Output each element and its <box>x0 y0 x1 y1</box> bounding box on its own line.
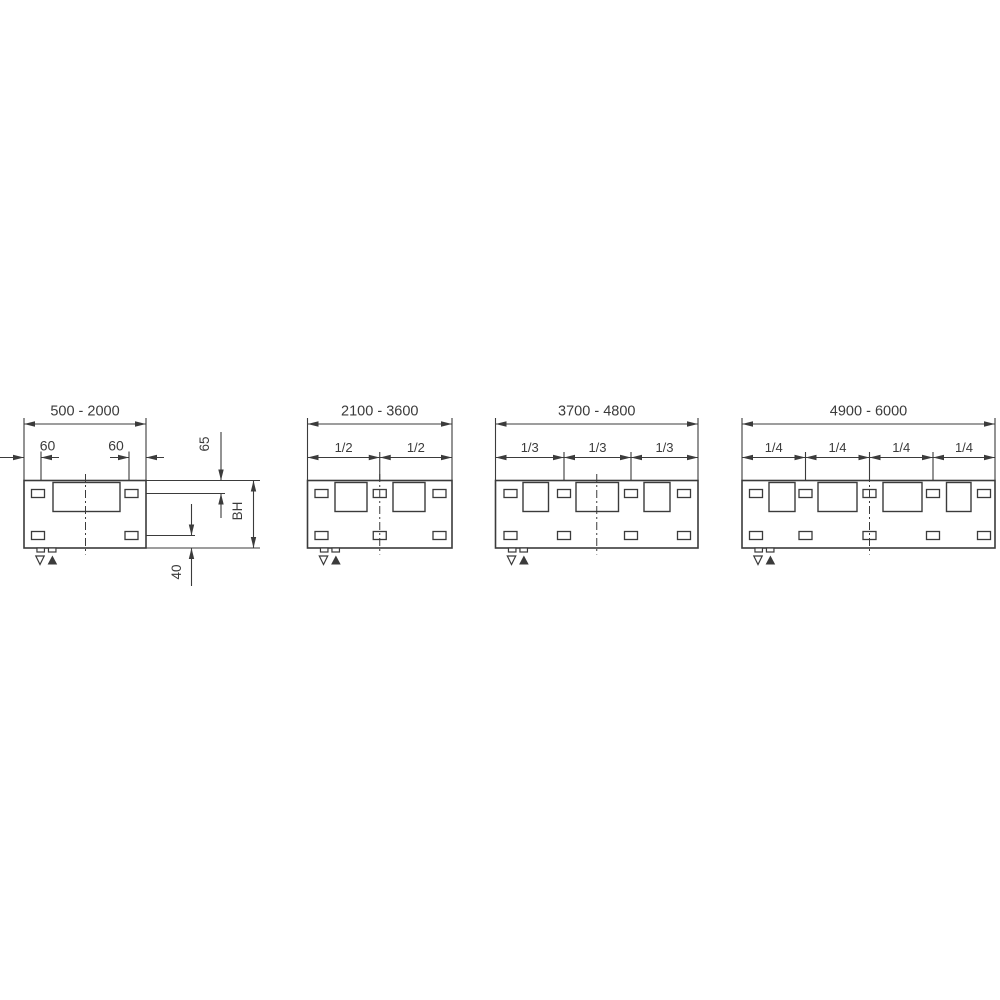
fixing-slot-bottom <box>927 532 940 540</box>
window-cutout <box>393 483 425 512</box>
diagram-range-4900-6000: 4900 - 60001/41/41/41/4 <box>742 404 995 565</box>
dimension-arrow-icon <box>135 421 146 426</box>
fixing-slot-bottom <box>978 532 991 540</box>
fixing-slot-top <box>433 490 446 498</box>
fixing-slot-top <box>504 490 517 498</box>
window-cutout <box>523 483 549 512</box>
range-label: 4900 - 6000 <box>830 404 907 420</box>
fixing-slot-top <box>678 490 691 498</box>
dimension-arrow-icon <box>984 455 995 460</box>
dimension-arrow-icon <box>189 548 194 559</box>
mounting-foot <box>48 548 56 552</box>
fixing-slot-bottom <box>504 532 517 540</box>
dimension-arrow-icon <box>369 455 380 460</box>
fixing-slot-top <box>32 490 45 498</box>
dimension-arrow-icon <box>380 455 391 460</box>
diagram-range-3700-4800: 3700 - 48001/31/31/3 <box>496 404 699 565</box>
dimension-arrow-icon <box>441 421 452 426</box>
fixing-slot-bottom <box>558 532 571 540</box>
dimension-arrow-icon <box>859 455 870 460</box>
dimension-arrow-icon <box>13 455 24 460</box>
dimension-arrow-icon <box>553 455 564 460</box>
window-cutout <box>818 483 857 512</box>
segment-label: 1/4 <box>955 440 973 455</box>
window-cutout <box>883 483 922 512</box>
segment-label: 1/3 <box>588 440 606 455</box>
height-dimension-label: 65 <box>197 436 212 451</box>
range-label: 3700 - 4800 <box>558 404 635 420</box>
dimension-arrow-icon <box>496 421 507 426</box>
mounting-foot <box>320 548 328 552</box>
fixing-slot-top <box>978 490 991 498</box>
fixing-slot-bottom <box>625 532 638 540</box>
fixing-slot-top <box>125 490 138 498</box>
fixing-slot-bottom <box>799 532 812 540</box>
mounting-foot <box>520 548 528 552</box>
range-label: 2100 - 3600 <box>341 404 418 420</box>
fixing-slot-top <box>750 490 763 498</box>
mounting-foot <box>508 548 516 552</box>
fixing-slot-bottom <box>750 532 763 540</box>
mounting-dimension-diagram: 500 - 2000606065BH402100 - 36001/21/2370… <box>0 0 1000 1000</box>
dimension-arrow-icon <box>218 494 223 505</box>
fixing-slot-top <box>625 490 638 498</box>
height-dimension-label: BH <box>230 502 245 521</box>
dimension-arrow-icon <box>984 421 995 426</box>
dimension-arrow-icon <box>496 455 507 460</box>
segment-label: 1/2 <box>407 440 425 455</box>
mounting-foot <box>755 548 763 552</box>
segment-label: 1/4 <box>828 440 846 455</box>
dimension-arrow-icon <box>218 470 223 481</box>
level-marker-open-down-icon <box>319 556 327 565</box>
dimension-arrow-icon <box>146 455 157 460</box>
fixing-slot-top <box>927 490 940 498</box>
fixing-slot-bottom <box>315 532 328 540</box>
level-marker-filled-up-icon <box>766 556 776 565</box>
technical-drawing-canvas: 500 - 2000606065BH402100 - 36001/21/2370… <box>0 0 1000 1000</box>
fixing-slot-top <box>799 490 812 498</box>
level-marker-open-down-icon <box>36 556 44 565</box>
dimension-arrow-icon <box>308 455 319 460</box>
fixing-slot-bottom <box>433 532 446 540</box>
fixing-slot-bottom <box>32 532 45 540</box>
dimension-arrow-icon <box>922 455 933 460</box>
dimension-arrow-icon <box>118 455 129 460</box>
dimension-arrow-icon <box>631 455 642 460</box>
mounting-foot <box>37 548 45 552</box>
range-label: 500 - 2000 <box>50 404 119 420</box>
window-cutout <box>769 483 795 512</box>
dimension-arrow-icon <box>933 455 944 460</box>
mounting-foot <box>332 548 340 552</box>
segment-label: 1/4 <box>892 440 910 455</box>
dimension-arrow-icon <box>795 455 806 460</box>
mounting-foot <box>766 548 774 552</box>
dimension-arrow-icon <box>806 455 817 460</box>
dimension-arrow-icon <box>308 421 319 426</box>
dimension-arrow-icon <box>189 525 194 536</box>
fixing-slot-bottom <box>125 532 138 540</box>
fixing-slot-bottom <box>678 532 691 540</box>
window-cutout <box>335 483 367 512</box>
dimension-arrow-icon <box>24 421 35 426</box>
dimension-arrow-icon <box>687 455 698 460</box>
dimension-arrow-icon <box>41 455 52 460</box>
fixing-slot-top <box>315 490 328 498</box>
dimension-arrow-icon <box>620 455 631 460</box>
dimension-arrow-icon <box>251 537 256 548</box>
level-marker-filled-up-icon <box>48 556 58 565</box>
segment-label: 1/3 <box>521 440 539 455</box>
dimension-arrow-icon <box>441 455 452 460</box>
window-cutout <box>53 483 120 512</box>
edge-offset-label: 60 <box>40 438 56 454</box>
height-dimension-label: 40 <box>169 564 184 579</box>
segment-label: 1/2 <box>335 440 353 455</box>
window-cutout <box>947 483 972 512</box>
level-marker-open-down-icon <box>754 556 762 565</box>
diagram-range-500-2000: 500 - 2000606065BH40 <box>0 404 260 587</box>
diagram-range-2100-3600: 2100 - 36001/21/2 <box>308 404 453 565</box>
level-marker-open-down-icon <box>507 556 515 565</box>
level-marker-filled-up-icon <box>331 556 341 565</box>
dimension-arrow-icon <box>870 455 881 460</box>
dimension-arrow-icon <box>687 421 698 426</box>
window-cutout <box>644 483 670 512</box>
dimension-arrow-icon <box>742 455 753 460</box>
fixing-slot-top <box>558 490 571 498</box>
segment-label: 1/4 <box>765 440 783 455</box>
segment-label: 1/3 <box>655 440 673 455</box>
dimension-arrow-icon <box>564 455 575 460</box>
dimension-arrow-icon <box>251 481 256 492</box>
dimension-arrow-icon <box>742 421 753 426</box>
edge-offset-label: 60 <box>108 438 124 454</box>
level-marker-filled-up-icon <box>519 556 529 565</box>
